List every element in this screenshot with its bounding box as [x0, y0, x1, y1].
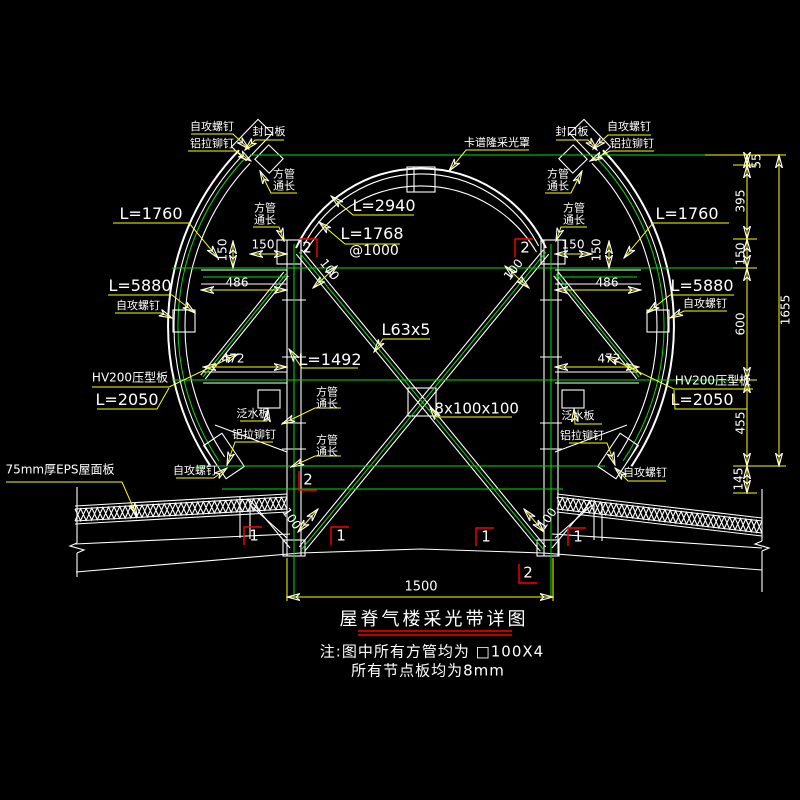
marker-1-right-b: 1: [573, 529, 583, 546]
length-1768: L=1768: [340, 225, 403, 243]
dim-150-left-h: 150: [252, 238, 275, 251]
dim-395: 395: [734, 190, 747, 213]
marker-1-left-b: 1: [336, 528, 346, 545]
dim-145: 145: [732, 468, 745, 491]
rivet-label-bottom-left: 铝拉铆钉: [232, 429, 276, 441]
dim-55: 55: [750, 153, 763, 168]
square-tube-label-right-2: 方管 通长: [563, 203, 585, 228]
dim-472-right: 472: [598, 352, 621, 365]
dim-100-bottom-left: 100: [279, 506, 303, 532]
gusset-plate-label: -8x100x100: [429, 401, 519, 418]
drawing-title: 屋脊气楼采光带详图: [340, 605, 529, 631]
drawing-note-2: 所有节点板均为8mm: [351, 660, 505, 681]
length-1760-left: L=1760: [119, 205, 182, 223]
dim-150-right-v: 150: [590, 239, 603, 262]
square-tube-label-left-2: 方管 通长: [254, 203, 276, 228]
length-5880-right: L=5880: [670, 277, 733, 295]
dim-150-chain: 150: [734, 243, 747, 266]
screw-label-bottom-right: 自攻螺钉: [623, 467, 667, 479]
dim-1655: 1655: [779, 295, 792, 326]
hv200-label-right: HV200压型板: [675, 374, 751, 387]
dim-150-right-h: 150: [562, 238, 585, 251]
annotation-layer: 屋脊气楼采光带详图 注:图中所有方管均为 □100X4 所有节点板均为8mm 自…: [0, 0, 800, 800]
square-tube-label-col-low: 方管 通长: [316, 435, 338, 460]
dim-100-top-left: 100: [317, 257, 342, 283]
marker-2-top-left: 2: [302, 240, 312, 257]
dim-1500: 1500: [404, 581, 437, 596]
skylight-cover-label: 卡谱隆采光罩: [464, 137, 530, 149]
marker-2-top-right: 2: [520, 240, 530, 257]
screw-label-mid-right: 自攻螺钉: [683, 298, 727, 310]
dim-472-left: 472: [222, 352, 245, 365]
drawing-note-1: 注:图中所有方管均为 □100X4: [320, 641, 544, 662]
screw-label-top-right: 自攻螺钉: [607, 121, 651, 133]
dim-455: 455: [734, 412, 747, 435]
length-2050-right: L=2050: [670, 391, 733, 409]
marker-1-right-a: 1: [481, 529, 491, 546]
marker-1-left-a: 1: [249, 528, 259, 545]
dim-100-top-right: 100: [502, 257, 527, 283]
dim-150-left-v: 150: [216, 239, 229, 262]
screw-label-bottom-left: 自攻螺钉: [173, 465, 217, 477]
dim-486-right: 486: [596, 276, 619, 289]
length-2940: L=2940: [352, 197, 415, 215]
length-2050-left: L=2050: [95, 391, 158, 409]
angle-steel-label: L63x5: [382, 321, 431, 339]
flashing-label-left: 泛水板: [237, 408, 270, 420]
square-tube-label-top-right: 方管 通长: [547, 169, 569, 194]
rivet-label-top-left: 铝拉铆钉: [190, 138, 234, 150]
square-tube-label-top-left: 方管 通长: [273, 169, 295, 194]
screw-label-mid-left: 自攻螺钉: [116, 300, 160, 312]
seal-plate-label-left: 封口板: [253, 126, 286, 138]
rivet-label-top-right: 铝拉铆钉: [610, 138, 654, 150]
length-1760-right: L=1760: [655, 205, 718, 223]
spacing-1000: @1000: [349, 244, 399, 260]
marker-2-bottom-right: 2: [523, 565, 533, 582]
seal-plate-label-right: 封口板: [556, 126, 589, 138]
eps-roof-label: 75mm厚EPS屋面板: [5, 463, 114, 476]
length-1492: L=1492: [298, 351, 361, 369]
flashing-label-right: 泛水板: [562, 410, 595, 422]
dim-486-left: 486: [226, 276, 249, 289]
marker-2-bottom-left: 2: [303, 472, 313, 489]
dim-600: 600: [734, 313, 747, 336]
cad-drawing-view: 屋脊气楼采光带详图 注:图中所有方管均为 □100X4 所有节点板均为8mm 自…: [0, 0, 800, 800]
screw-label-top-left: 自攻螺钉: [190, 121, 234, 133]
hv200-label-left: HV200压型板: [92, 371, 168, 384]
dim-100-bottom-right: 100: [536, 506, 560, 532]
rivet-label-bottom-right: 铝拉铆钉: [560, 430, 604, 442]
square-tube-label-col-mid: 方管 通长: [316, 387, 338, 412]
length-5880-left: L=5880: [108, 277, 171, 295]
